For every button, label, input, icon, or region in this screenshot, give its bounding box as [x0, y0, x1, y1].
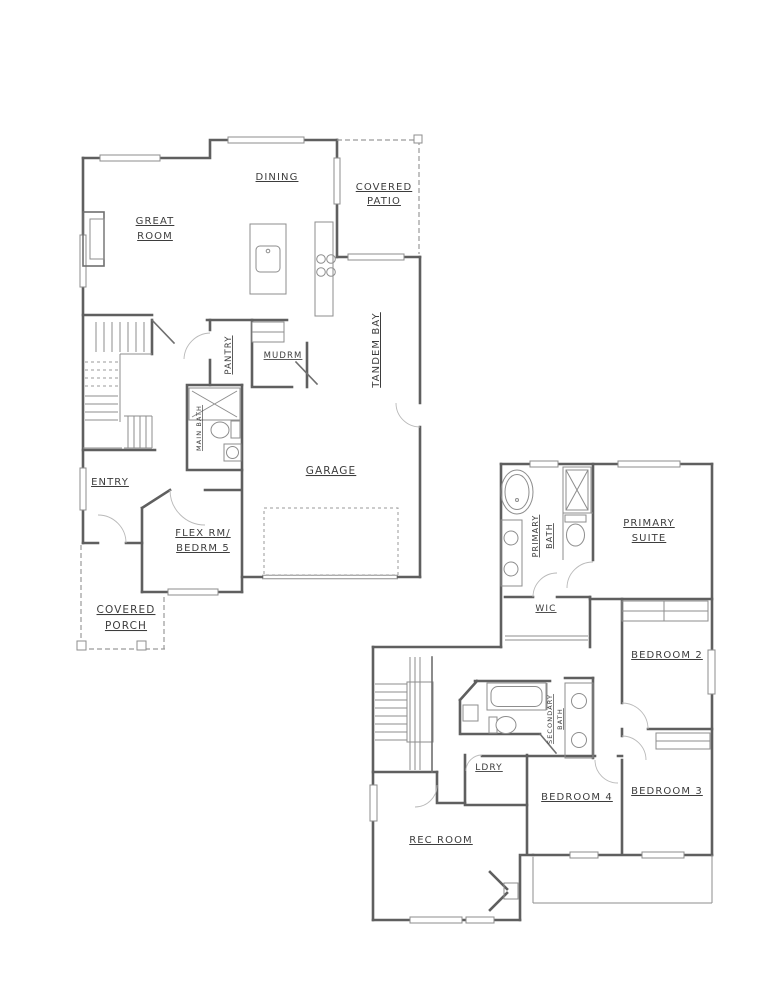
- room-label-flex-room: BEDRM 5: [176, 543, 230, 554]
- room-label-covered-patio: COVERED: [356, 182, 413, 193]
- lower-roof-outline: [533, 855, 712, 903]
- secondary-bath-fixtures: [463, 683, 593, 758]
- room-label-dining: DINING: [256, 172, 299, 183]
- porch-post: [77, 641, 86, 650]
- garage-parking-outline: [264, 508, 398, 575]
- room-label-ldry: LDRY: [475, 763, 503, 773]
- second-floor-plan: PRIMARY BATH PRIMARY SUITE WIC BEDROOM 2…: [370, 461, 715, 923]
- room-label-primary-bath: BATH: [545, 523, 554, 549]
- staircase: [375, 657, 433, 772]
- room-label-covered-patio: PATIO: [367, 196, 401, 207]
- double-vanity-icon: [565, 683, 593, 758]
- bedroom3-closet: [656, 733, 710, 749]
- floor-plan-drawing: GREAT ROOM DINING COVERED PATIO TANDEM B…: [0, 0, 773, 1000]
- staircase: [83, 322, 152, 448]
- toilet-icon: [231, 421, 240, 438]
- room-label-great-room: ROOM: [137, 231, 173, 242]
- room-label-tandem-bay: TANDEM BAY: [371, 312, 382, 389]
- room-label-great-room: GREAT: [136, 216, 175, 227]
- room-label-secondary-bath: SECONDARY: [546, 694, 554, 744]
- garage-door-opening: [262, 575, 398, 578]
- floor-plan-page: GREAT ROOM DINING COVERED PATIO TANDEM B…: [0, 0, 773, 1000]
- patio-post: [414, 135, 422, 143]
- room-label-entry: ENTRY: [91, 477, 129, 488]
- room-label-mudrm: MUDRM: [264, 351, 303, 361]
- room-label-pantry: PANTRY: [224, 335, 234, 374]
- room-label-primary-suite: SUITE: [632, 533, 667, 544]
- mudroom-bench: [252, 322, 284, 342]
- porch-post: [137, 641, 146, 650]
- room-label-primary-bath: PRIMARY: [531, 515, 540, 558]
- room-label-bedroom4: BEDROOM 4: [541, 792, 613, 803]
- room-label-covered-porch: COVERED: [97, 604, 156, 616]
- room-label-garage: GARAGE: [306, 465, 357, 477]
- corner-fireplace: [490, 872, 518, 910]
- first-floor-plan: GREAT ROOM DINING COVERED PATIO TANDEM B…: [77, 135, 422, 650]
- dashed-outlines: [77, 135, 422, 650]
- room-label-flex-room: FLEX RM/: [175, 528, 230, 539]
- freestanding-tub-icon: [501, 470, 533, 514]
- room-label-bedroom2: BEDROOM 2: [631, 650, 703, 661]
- bedroom2-closet: [622, 601, 708, 621]
- room-label-bedroom3: BEDROOM 3: [631, 786, 703, 797]
- wic-shelves: [505, 636, 588, 640]
- toilet-icon: [565, 515, 586, 522]
- room-label-primary-suite: PRIMARY: [623, 518, 675, 529]
- range-cooktop: [315, 222, 335, 316]
- covered-porch-outline: [81, 545, 165, 650]
- room-label-secondary-bath: BATH: [556, 708, 564, 730]
- room-label-wic: WIC: [535, 604, 556, 614]
- kitchen-island-sink: [250, 224, 286, 294]
- room-label-covered-porch: PORCH: [105, 620, 147, 632]
- room-label-rec-room: REC ROOM: [409, 835, 473, 846]
- room-label-main-bath: MAIN BATH: [195, 405, 203, 451]
- linen-closet: [463, 705, 478, 721]
